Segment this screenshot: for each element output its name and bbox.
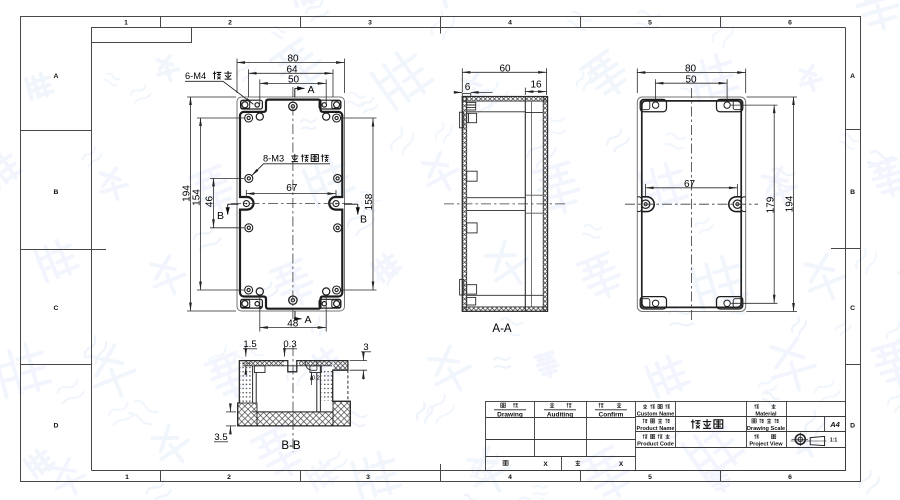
svg-text:1: 1 [125, 474, 129, 481]
svg-text:Product Name: Product Name [637, 426, 675, 432]
svg-text:Project View: Project View [749, 442, 783, 448]
svg-text:1: 1 [124, 20, 128, 27]
svg-text:0.3: 0.3 [283, 339, 296, 350]
svg-text:1.5: 1.5 [243, 339, 256, 350]
svg-text:Drawing: Drawing [497, 411, 523, 418]
svg-text:179: 179 [765, 196, 776, 213]
svg-text:194: 194 [785, 195, 796, 212]
svg-text:Auditing: Auditing [547, 411, 573, 418]
svg-text:8-M3: 8-M3 [263, 154, 284, 164]
svg-text:4: 4 [508, 474, 512, 481]
svg-text:67: 67 [286, 183, 298, 194]
svg-text:A: A [307, 84, 314, 96]
svg-text:B: B [850, 189, 855, 196]
svg-text:A: A [54, 73, 59, 80]
svg-text:60: 60 [499, 63, 511, 74]
svg-text:6: 6 [465, 82, 471, 93]
svg-text:C: C [850, 305, 855, 312]
svg-text:3: 3 [368, 20, 372, 27]
svg-text:Confirm: Confirm [599, 411, 624, 418]
svg-text:6: 6 [788, 474, 792, 481]
svg-text:50: 50 [685, 74, 697, 85]
svg-text:6-M4: 6-M4 [185, 71, 206, 81]
svg-text:67: 67 [684, 179, 696, 190]
svg-text:X: X [619, 461, 624, 468]
svg-text:Drawing Scale: Drawing Scale [747, 426, 785, 432]
svg-text:48: 48 [287, 319, 299, 330]
svg-text:3.5: 3.5 [214, 432, 227, 443]
svg-text:C: C [54, 305, 59, 312]
svg-text:Custom Name: Custom Name [637, 412, 675, 418]
svg-text:B: B [54, 189, 59, 196]
svg-text:2: 2 [227, 474, 231, 481]
svg-text:0.2: 0.2 [312, 376, 320, 382]
svg-text:4: 4 [508, 20, 512, 27]
svg-text:5: 5 [648, 20, 652, 27]
svg-text:Material: Material [755, 412, 777, 418]
svg-text:A4: A4 [829, 420, 840, 429]
svg-text:A-A: A-A [492, 323, 512, 335]
svg-text:46: 46 [205, 196, 216, 208]
svg-text:80: 80 [287, 54, 299, 65]
svg-text:1:1: 1:1 [830, 438, 838, 444]
svg-text:5: 5 [648, 474, 652, 481]
svg-text:A: A [304, 314, 311, 326]
svg-text:16: 16 [530, 80, 542, 91]
svg-text:2: 2 [228, 20, 232, 27]
svg-text:D: D [54, 423, 59, 430]
svg-text:50: 50 [288, 75, 300, 86]
svg-text:80: 80 [685, 64, 697, 75]
svg-text:154: 154 [192, 189, 203, 206]
svg-text:3: 3 [363, 342, 368, 353]
svg-text:3: 3 [366, 474, 370, 481]
svg-text:B: B [360, 214, 367, 226]
svg-text:X: X [543, 461, 548, 468]
svg-text:Product Code: Product Code [637, 442, 674, 448]
svg-text:D: D [850, 423, 855, 430]
svg-text:B: B [217, 210, 224, 222]
svg-text:B-B: B-B [281, 440, 301, 452]
svg-text:158: 158 [364, 193, 375, 210]
svg-text:A: A [850, 73, 855, 80]
svg-text:6: 6 [788, 20, 792, 27]
